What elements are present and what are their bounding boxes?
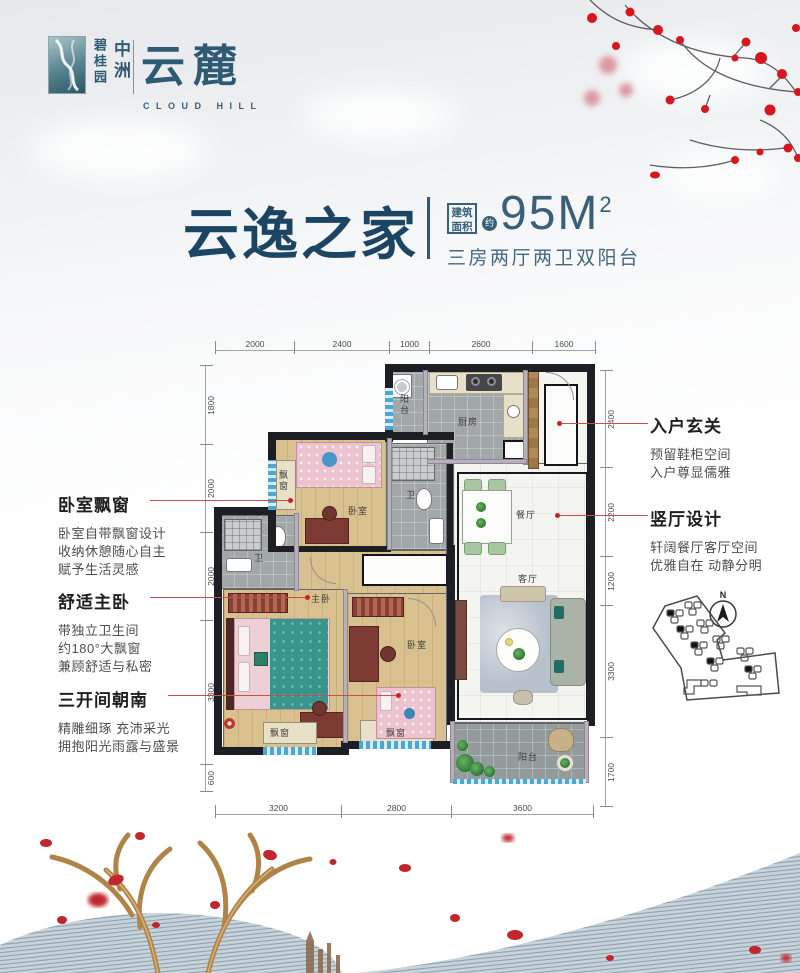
dim-label: 1200 — [606, 572, 616, 591]
project-name: 云麓 — [141, 30, 245, 94]
sofa-pillow — [554, 606, 564, 619]
annotation-heading: 卧室飘窗 — [58, 491, 208, 516]
approx-mark: 约 — [482, 216, 497, 231]
dim-label: 3600 — [513, 803, 532, 813]
annotation-vertical-hall: 竖厅设计 轩阔餐厅客厅空间 优雅自在 动静分明 — [650, 505, 800, 575]
dim-label: 2000 — [246, 339, 265, 349]
chair — [322, 506, 337, 521]
dim-label: 1000 — [400, 339, 419, 349]
layout-subtitle: 三房两厅两卫双阳台 — [447, 243, 641, 270]
table-plant-icon — [476, 518, 486, 528]
connector-line — [150, 597, 307, 598]
dining-chair — [488, 542, 506, 555]
connector-dot — [557, 421, 562, 426]
annotation-line: 约180°大飘窗 — [58, 640, 208, 658]
stove-icon — [466, 374, 502, 391]
wall — [214, 507, 222, 755]
desk-bedroom-2 — [305, 518, 349, 544]
connector-dot — [555, 513, 560, 518]
cushion — [254, 652, 268, 666]
annotation-line: 轩阔餐厅客厅空间 — [650, 539, 800, 557]
annotation-entry: 入户玄关 预留鞋柜空间 入户尊显儒雅 — [650, 412, 800, 482]
label-master-bath: 卫 — [254, 551, 264, 564]
wall — [268, 546, 391, 552]
annotation-line: 赋予生活灵感 — [58, 561, 208, 579]
connector-line — [557, 515, 648, 516]
dimension-chain-left: 1800 2000 2000 3300 600 — [200, 365, 213, 792]
shoe-cabinet — [528, 371, 539, 469]
round-rug — [322, 452, 337, 467]
fridge-icon — [503, 440, 525, 460]
partition-wall — [523, 370, 528, 465]
building-footprint — [737, 686, 761, 695]
dining-chair — [464, 542, 482, 555]
balcony-plant — [484, 766, 495, 777]
brand-logo-icon — [48, 36, 86, 94]
sofa-pillow — [554, 660, 564, 673]
shower-area — [391, 447, 435, 481]
annotation-line: 优雅自在 动静分明 — [650, 557, 800, 575]
cloud-blob — [300, 90, 460, 140]
area-value: 95M2 — [500, 186, 614, 241]
pot-plant-leaf — [560, 758, 570, 768]
wardrobe-master — [228, 593, 288, 613]
dimension-chain-top: 2000 2400 1000 2600 1600 — [215, 341, 596, 354]
annotation-line: 带独立卫生间 — [58, 622, 208, 640]
connector-line — [168, 695, 398, 696]
table-plant-icon — [513, 648, 525, 660]
dim-label: 1600 — [555, 339, 574, 349]
building-cluster — [667, 602, 761, 686]
annotation-line: 卧室自带飘窗设计 — [58, 525, 208, 543]
area-badge-line1: 建筑 — [449, 206, 475, 220]
annotation-line: 收纳休憩随心自主 — [58, 543, 208, 561]
left-hill — [0, 913, 342, 973]
dim-label: 2800 — [387, 803, 406, 813]
annotation-line: 精雕细琢 充沛采光 — [58, 720, 208, 738]
dim-label: 2400 — [333, 339, 352, 349]
bed-headboard — [226, 618, 234, 710]
brand-name-biguiyuan: 碧桂园 — [90, 38, 109, 96]
area-number: 95M — [500, 187, 599, 240]
area-superscript: 2 — [599, 192, 613, 217]
partition-wall — [343, 589, 348, 743]
round-rug — [404, 708, 415, 719]
bathroom-sink-icon — [429, 518, 444, 544]
right-hill — [356, 853, 800, 973]
title-divider — [427, 197, 430, 259]
dim-label: 3200 — [269, 803, 288, 813]
cloud-blob — [30, 120, 210, 180]
pillow — [380, 691, 392, 711]
annotation-heading: 三开间朝南 — [58, 686, 208, 711]
dim-label: 3300 — [206, 683, 216, 702]
area-badge-line2: 面积 — [449, 220, 475, 234]
poster-background: 碧桂园 中洲 云麓 CLOUD HILL — [0, 0, 800, 973]
annotation-master-bedroom: 舒适主卧 带独立卫生间 约180°大飘窗 兼顾舒适与私密 — [58, 588, 208, 676]
connector-line — [559, 423, 648, 424]
label-kitchen: 厨房 — [458, 415, 478, 428]
bay-window-glass — [359, 741, 431, 749]
chair — [312, 701, 327, 716]
label-bay-window-master: 飘窗 — [270, 726, 290, 739]
balcony-glass — [453, 779, 586, 784]
partition-wall — [294, 513, 299, 591]
label-bedroom-2: 卧室 — [348, 504, 368, 517]
desk-bedroom-3 — [349, 626, 379, 682]
wall — [447, 545, 455, 725]
logo-abstract-icon — [48, 36, 86, 94]
bathroom-sink-icon — [226, 558, 252, 572]
balcony-wall — [584, 721, 589, 783]
logo-divider — [133, 40, 134, 94]
dim-label: 2600 — [472, 339, 491, 349]
label-dining: 餐厅 — [516, 508, 536, 521]
label-balcony-bottom: 阳台 — [518, 750, 538, 763]
label-bay-window-3: 飘窗 — [386, 726, 406, 739]
connector-line — [150, 500, 290, 501]
label-master-bedroom: 主卧 — [311, 592, 331, 605]
window-glass — [385, 388, 393, 430]
stool — [513, 690, 533, 705]
partition-wall — [423, 370, 428, 435]
building-footprint — [684, 680, 701, 694]
dining-table — [462, 490, 512, 544]
annotation-line: 预留鞋柜空间 — [650, 446, 800, 464]
partition-wall — [427, 459, 527, 464]
bottom-decoration — [0, 823, 800, 973]
bench — [500, 586, 546, 602]
pillow — [362, 466, 376, 484]
pillow — [238, 662, 250, 692]
dim-label: 2000 — [206, 567, 216, 586]
annotation-bay-window: 卧室飘窗 卧室自带飘窗设计 收纳休憩随心自主 赋予生活灵感 — [58, 491, 208, 579]
shower-area — [224, 519, 262, 551]
dim-label: 3300 — [606, 662, 616, 681]
pillow — [238, 626, 250, 656]
dimension-chain-bottom: 3200 2800 3600 — [215, 805, 594, 818]
connector-dot — [396, 693, 401, 698]
balcony-wall — [450, 721, 455, 783]
bay-window-glass — [268, 460, 276, 510]
dim-label: 1700 — [606, 763, 616, 782]
chair — [380, 646, 396, 662]
plate-icon — [505, 638, 513, 646]
balcony-plant — [470, 762, 484, 776]
label-balcony-top: 阳台 — [398, 394, 411, 416]
floor-plan: 阳台 厨房 卫 卧室 飘窗 卫 主卧 餐厅 客厅 卧室 飘窗 飘窗 阳台 — [210, 360, 605, 820]
compass-north-label: N — [720, 590, 727, 600]
small-sink-icon — [507, 405, 520, 418]
kitchen-sink-icon — [436, 375, 458, 390]
bay-window-glass — [263, 747, 317, 755]
compass-arrow-icon — [717, 604, 729, 622]
wall — [587, 364, 595, 726]
annotation-heading: 入户玄关 — [650, 412, 800, 437]
annotation-south-facing: 三开间朝南 精雕细琢 充沛采光 拥抱阳光雨露与盛景 — [58, 686, 208, 756]
page-title: 云逸之家 — [183, 190, 419, 271]
dimension-chain-right: 2400 2200 1200 3300 1700 — [600, 370, 613, 807]
dim-label: 600 — [206, 771, 216, 785]
area-badge: 建筑 面积 — [447, 203, 477, 234]
label-living: 客厅 — [518, 572, 538, 585]
label-bedroom-3: 卧室 — [407, 638, 427, 651]
brand-name-zhongzhou: 中洲 — [108, 40, 133, 90]
annotation-heading: 舒适主卧 — [58, 588, 208, 613]
partition-wall — [387, 438, 392, 550]
lamp-icon — [224, 718, 235, 729]
label-guest-bath: 卫 — [406, 488, 416, 501]
hall-storage — [362, 554, 448, 586]
pillow — [362, 445, 376, 463]
wall — [385, 364, 595, 372]
tv-cabinet — [455, 600, 467, 680]
connector-dot — [288, 498, 293, 503]
annotation-line: 兼顾舒适与私密 — [58, 658, 208, 676]
label-bay-window-2: 飘窗 — [277, 470, 290, 492]
wall — [214, 507, 276, 515]
plum-blossom-decoration — [530, 0, 800, 185]
wardrobe-bedroom-3 — [352, 597, 404, 617]
dim-label: 2400 — [606, 410, 616, 429]
project-name-en: CLOUD HILL — [143, 101, 263, 111]
dim-label: 2000 — [206, 479, 216, 498]
dim-label: 2200 — [606, 503, 616, 522]
table-plant-icon — [476, 502, 486, 512]
annotation-heading: 竖厅设计 — [650, 505, 800, 530]
annotation-line: 拥抱阳光雨露与盛景 — [58, 738, 208, 756]
annotation-line: 入户尊显儒雅 — [650, 464, 800, 482]
site-plan: N — [645, 588, 800, 710]
toilet-icon — [416, 488, 432, 510]
balcony-plant — [457, 740, 468, 751]
balcony-chair — [548, 728, 574, 752]
dim-label: 1800 — [206, 396, 216, 415]
connector-dot — [305, 595, 310, 600]
